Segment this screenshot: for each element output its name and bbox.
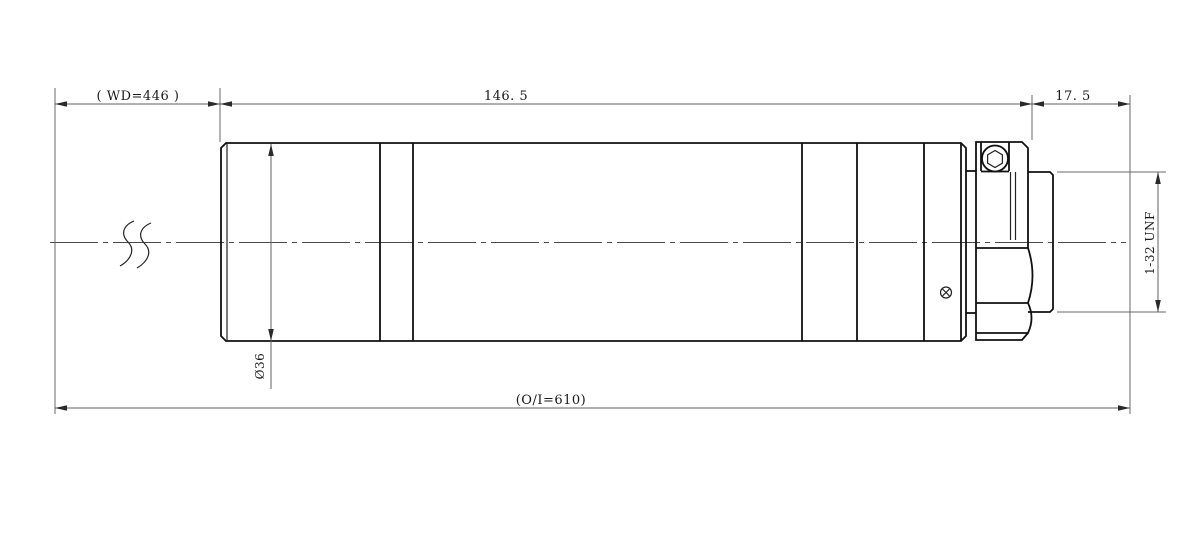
dim-flange-offset-label: 17. 5 <box>1055 89 1091 104</box>
dim-body-length-label: 146. 5 <box>484 89 528 104</box>
dim-overall-length-label: (O/I=610) <box>516 393 587 408</box>
lens-assembly-drawing: ( WD=446 ) 146. 5 17. 5 (O/I=610) Ø36 1-… <box>0 0 1200 540</box>
set-screw-icon <box>941 287 952 298</box>
hex-socket-bolt-icon <box>982 146 1008 172</box>
break-squiggle-right <box>137 223 151 268</box>
dim-mount-thread-label: 1-32 UNF <box>1143 211 1157 275</box>
break-squiggle-left <box>120 221 134 266</box>
dim-working-distance-label: ( WD=446 ) <box>97 89 180 104</box>
break-symbol <box>120 221 151 268</box>
technical-drawing-canvas: ( WD=446 ) 146. 5 17. 5 (O/I=610) Ø36 1-… <box>0 0 1200 540</box>
dim-body-diameter-label: Ø36 <box>253 353 267 380</box>
clamp-ring <box>976 142 1033 340</box>
